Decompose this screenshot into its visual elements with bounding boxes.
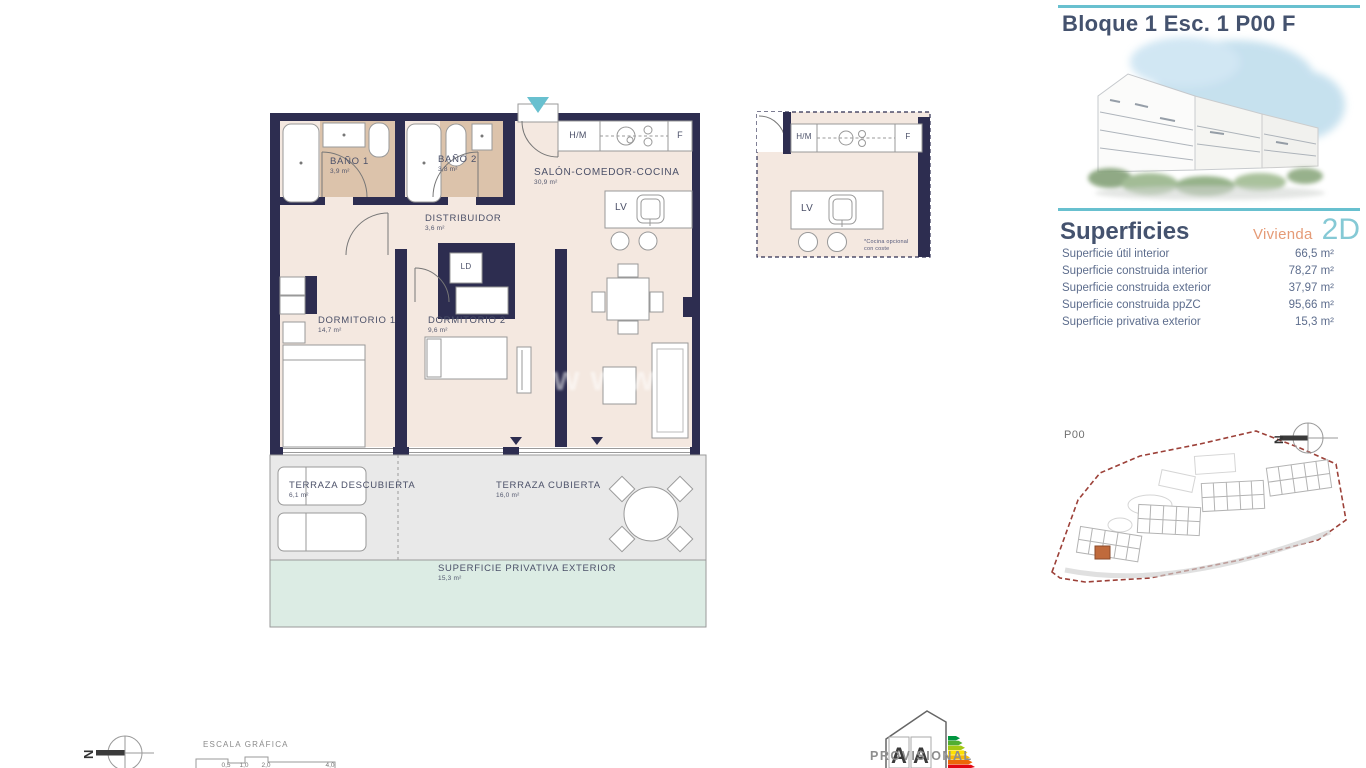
watermark: www <box>553 360 893 399</box>
row-label: Superficie construida interior <box>1062 263 1208 280</box>
room-label-dormitorio1: DORMITORIO 114,7 m² <box>318 316 396 334</box>
round-table-icon <box>624 487 678 541</box>
bottom-glazing <box>283 447 690 455</box>
provisional-label: PROVISIONAL <box>870 749 973 763</box>
graphic-scale-bar: 0,5 1,0 2,0 4,0 <box>196 757 335 768</box>
room-label-bano1: BAÑO 13,9 m² <box>330 157 369 175</box>
siteplan-floor-label: P00 <box>1064 429 1085 441</box>
wardrobe-icon <box>456 287 508 314</box>
room-label-bano2: BAÑO 23,8 m² <box>438 155 477 173</box>
detail-label-f: F <box>895 132 921 141</box>
row-value: 15,3 m² <box>1295 314 1334 331</box>
row-label: Superficie útil interior <box>1062 246 1169 263</box>
wall-pilaster <box>683 297 700 317</box>
table-row: Superficie construida interior 78,27 m² <box>1062 263 1334 280</box>
stool-icon <box>639 232 657 250</box>
pillow-icon <box>427 339 441 377</box>
svg-text:N: N <box>81 750 96 759</box>
vivienda-code: 2D <box>1322 213 1360 247</box>
svg-text:2,0: 2,0 <box>261 762 270 768</box>
sun-lounger-icon <box>278 513 366 551</box>
apartment-plan <box>270 97 700 455</box>
row-label: Superficie construida ppZC <box>1062 297 1201 314</box>
room-label-distribuidor: DISTRIBUIDOR3,6 m² <box>425 214 502 232</box>
detail-label-hm: H/M <box>791 132 817 141</box>
utility-block <box>438 243 515 319</box>
north-compass-icon: N <box>1272 423 1338 453</box>
chair-icon <box>618 321 638 334</box>
svg-text:4,0: 4,0 <box>325 762 334 768</box>
table-row: Superficie útil interior 66,5 m² <box>1062 246 1334 263</box>
table-icon <box>607 278 649 320</box>
chair-icon <box>592 292 605 312</box>
room-label-salon: SALÓN-COMEDOR-COCINA30,9 m² <box>534 167 680 186</box>
room-label-dormitorio2: DORMITORIO 29,6 m² <box>428 316 506 334</box>
desk-icon <box>517 347 531 393</box>
superficies-title: Superficies <box>1060 218 1189 246</box>
svg-text:0,5: 0,5 <box>221 762 230 768</box>
room-label-terraza-descubierta: TERRAZA DESCUBIERTA6,1 m² <box>289 481 415 499</box>
wardrobe-icon <box>280 277 305 295</box>
escala-grafica-label: ESCALA GRÁFICA <box>203 740 289 749</box>
floorplan-sheet: N N 0,5 1,0 2,0 4,0 A A <box>0 0 1366 768</box>
fixture-label-f: F <box>668 130 692 140</box>
room-label-terraza-cubierta: TERRAZA CUBIERTA16,0 m² <box>496 481 601 499</box>
footer-north-compass-icon: N <box>81 736 154 768</box>
fixture-label-lv: LV <box>609 202 633 213</box>
pillow-icon <box>283 322 305 343</box>
row-value: 95,66 m² <box>1289 297 1334 314</box>
room-label-superficie-privativa: SUPERFICIE PRIVATIVA EXTERIOR15,3 m² <box>438 564 616 582</box>
svg-text:N: N <box>1272 435 1286 444</box>
stool-icon <box>611 232 629 250</box>
table-row: Superficie privativa exterior 15,3 m² <box>1062 314 1334 331</box>
wardrobe-icon <box>280 296 305 314</box>
row-value: 37,97 m² <box>1289 280 1334 297</box>
superficies-header: Superficies Vivienda 2D <box>1060 213 1360 247</box>
stool-icon <box>828 233 847 252</box>
fixture-label-ld: LD <box>450 262 482 271</box>
table-row: Superficie construida ppZC 95,66 m² <box>1062 297 1334 314</box>
toilet-icon <box>369 123 389 157</box>
chair-icon <box>650 292 663 312</box>
row-label: Superficie privativa exterior <box>1062 314 1201 331</box>
sidebar-mid-rule <box>1058 208 1360 211</box>
site-plan: N <box>1052 423 1346 582</box>
row-value: 66,5 m² <box>1295 246 1334 263</box>
superficies-table: Superficie útil interior 66,5 m² Superfi… <box>1062 246 1334 331</box>
building-rendering-image <box>1088 37 1345 200</box>
table-row: Superficie construida exterior 37,97 m² <box>1062 280 1334 297</box>
stool-icon <box>799 233 818 252</box>
vivienda-label: Vivienda <box>1253 226 1313 243</box>
chair-icon <box>618 264 638 277</box>
detail-label-lv: LV <box>794 203 820 214</box>
highlighted-unit <box>1095 546 1110 559</box>
sidebar-top-rule <box>1058 5 1360 8</box>
fixture-label-hm: H/M <box>560 130 596 140</box>
detail-note: *Cocina opcionalcon coste <box>864 239 920 252</box>
row-value: 78,27 m² <box>1289 263 1334 280</box>
row-label: Superficie construida exterior <box>1062 280 1211 297</box>
page-title: Bloque 1 Esc. 1 P00 F <box>1062 11 1296 37</box>
svg-text:1,0: 1,0 <box>239 762 248 768</box>
